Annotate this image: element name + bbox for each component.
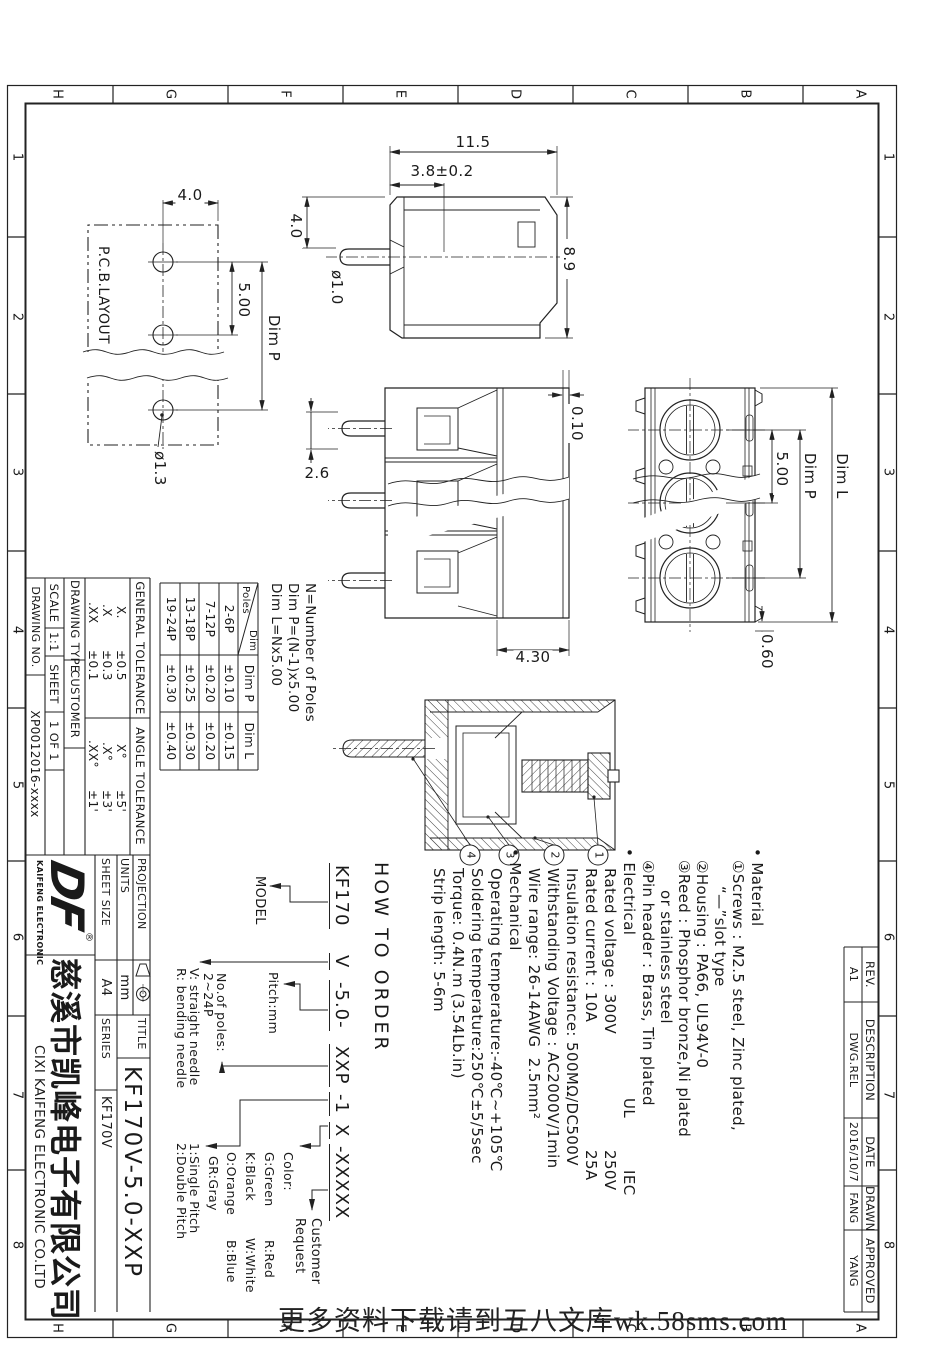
dim-front-step: 0.10: [568, 404, 584, 443]
zone-number: 6: [10, 933, 25, 941]
mechanical-line: Torque: 0.4N.m (3.54Lb.in): [449, 868, 465, 1079]
order-color-red: R:Red: [263, 1240, 276, 1278]
material-line: or stainless steel: [657, 890, 673, 1024]
mechanical-line: Operating temperature:-40℃~+105℃: [487, 868, 503, 1172]
order-needle-v: V: straight needle: [188, 968, 201, 1086]
poles-row-l: ±0.15: [222, 712, 235, 770]
zone-number: 4: [10, 626, 25, 634]
poles-row-p: ±0.20: [203, 655, 216, 712]
electrical-line: Wire range: 26-14AWG 2.5mm²: [525, 868, 541, 1119]
mechanical-line: Strip length: 5-6m: [430, 868, 446, 1012]
company-logo: DF: [40, 856, 94, 933]
zone-number: 2: [10, 313, 25, 321]
order-color-title: Color:: [282, 1152, 295, 1191]
sheet-value: 1 OF 1: [48, 712, 60, 770]
poles-row-l: ±0.40: [164, 712, 177, 770]
order-model-label: MODEL: [252, 876, 266, 925]
order-color-black: K:Black: [244, 1152, 257, 1201]
rev-value: A1: [847, 947, 859, 1002]
electrical-line: Rated voltage : 300V: [601, 868, 617, 1034]
drawing-title: KF170V-5.0-XXP: [120, 1066, 144, 1278]
front-view: [306, 370, 584, 656]
zone-number: 3: [10, 468, 25, 476]
dim-top-p: Dim P: [801, 441, 817, 511]
zone-letter: H: [50, 1323, 65, 1333]
ang-tol-k2: .X°: [100, 742, 113, 761]
ang-tol-v3: ±1': [86, 790, 99, 812]
watermark: 更多资料下载请到五八文库wk.58sms.com: [278, 1299, 788, 1338]
ang-tol-k1: X°: [114, 744, 127, 759]
zone-number: 6: [881, 933, 896, 941]
dim-side-pin-dia: ø1.0: [328, 268, 344, 307]
dim-top-tab: 0.60: [758, 632, 774, 671]
mechanical-title: • Mechanical: [506, 848, 522, 951]
order-color-green: G:Green: [263, 1152, 276, 1207]
section-view: [330, 700, 619, 850]
pole-note-1: N=Number of Poles: [303, 583, 317, 722]
dim-top-pitch: 5.00: [773, 443, 789, 495]
order-pitch-type-1: 1:Single Pitch: [188, 1143, 201, 1234]
poles-table-col2: Dim L: [242, 712, 255, 770]
pole-note-3: Dim L=Nx5.00: [269, 583, 283, 686]
poles-table-diag-bottom: Poles: [240, 586, 251, 614]
zone-letter: G: [163, 89, 178, 99]
zone-letter: E: [393, 90, 408, 98]
order-color-gray: GR:Gray: [207, 1156, 220, 1211]
order-poles-label: No.of poles:: [215, 973, 228, 1052]
material-line: ④Pin header : Brass, Tin plated: [639, 860, 655, 1106]
zone-letter: G: [163, 1323, 178, 1333]
company-name-en: CIXI KAIFENG ELECTRONIC CO.LTD: [32, 1045, 46, 1289]
dim-side-depth: 8.9: [560, 239, 576, 279]
poles-row-label: 13-18P: [183, 583, 196, 655]
order-code-poles: XXP: [329, 1044, 352, 1087]
zone-letter: C: [623, 89, 638, 98]
order-color-orange: O:Orange: [225, 1152, 238, 1215]
title-label: TITLE: [135, 1018, 147, 1050]
general-tolerance-title: GENERAL TOLERANCE: [134, 580, 146, 716]
dim-side-height: 11.5: [454, 135, 493, 151]
zone-number: 5: [10, 781, 25, 789]
zone-letter: D: [508, 89, 523, 99]
ang-tol-k3: .XX°: [86, 740, 99, 768]
dim-front-pin: 2.6: [302, 466, 331, 482]
registered-mark-icon: ®: [83, 932, 94, 942]
projection-symbol-icon: [136, 964, 150, 1004]
electrical-line: Rated current : 10A: [582, 868, 598, 1022]
date-header: DATE: [864, 1118, 876, 1186]
order-customer-1: Customer: [308, 1218, 322, 1284]
zone-number: 7: [10, 1091, 25, 1099]
zone-number: 7: [881, 1091, 896, 1099]
pdf-page: 4.0 5.00 Dim P P.C.B.LAYOUT ø1.3 11.5 3.…: [0, 0, 950, 1345]
approved-header: APPROVED: [864, 1230, 876, 1312]
poles-row-label: 2-6P: [222, 583, 235, 655]
dim-pcb-pitch: 5.00: [235, 276, 251, 324]
material-line: ②Housing : PA66, UL94V-0: [693, 860, 709, 1068]
drawn-value: FANG: [847, 1186, 859, 1230]
electrical-line-iec: 25A: [582, 1150, 598, 1181]
gen-tol-k3: .XX: [86, 602, 99, 623]
dim-pcb-hole-edge: 4.0: [175, 188, 204, 204]
poles-row-label: 7-12P: [203, 583, 216, 655]
ang-tol-v2: ±3': [100, 790, 113, 812]
drawing-no-label: DRAWING NO.: [29, 580, 41, 674]
electrical-std-ul: UL: [620, 1098, 636, 1118]
zone-letter: A: [853, 90, 868, 99]
dim-pcb-hole-dia: ø1.3: [151, 449, 167, 488]
material-title: • Material: [748, 848, 764, 927]
desc-value: DWG.REL: [847, 1002, 859, 1118]
electrical-line-iec: 250V: [601, 1150, 617, 1191]
zone-number: 1: [10, 153, 25, 161]
scale-value: 1:1: [48, 628, 60, 656]
order-code-customer: -XXXXX: [329, 1144, 352, 1221]
order-poles-range: 2~24P: [202, 973, 215, 1017]
gen-tol-k2: .X: [100, 604, 113, 617]
zone-letter: H: [50, 89, 65, 99]
gen-tol-v1: ±0.5: [114, 650, 127, 681]
poles-table-col1: Dim P: [242, 655, 255, 712]
poles-row-p: ±0.30: [164, 655, 177, 712]
zone-number: 1: [881, 153, 896, 161]
electrical-title: • Electrical: [620, 848, 636, 935]
order-code-needle: V: [329, 953, 352, 970]
ang-tol-v1: ±5': [114, 790, 127, 812]
order-code-pitch: -5.0-: [329, 980, 352, 1031]
sheet-size-label: SHEET SIZE: [99, 858, 111, 926]
date-value: 2016/10/7: [847, 1118, 859, 1186]
electrical-line: Withstanding Voltage : AC2000V/1min: [544, 868, 560, 1169]
material-line: ③Reed : Phosphor bronze,Ni plated: [675, 860, 691, 1137]
projection-label: PROJECTION: [135, 858, 147, 930]
balloon-4: 4: [460, 845, 481, 866]
order-code-pitchtype: -1: [329, 1092, 352, 1116]
gen-tol-k1: X.: [114, 606, 127, 619]
poles-table-diag-top: Dim: [247, 630, 258, 651]
order-needle-r: R: bending needle: [175, 968, 188, 1088]
angle-tolerance-title: ANGLE TOLERANCE: [134, 720, 146, 852]
pcb-layout-label: P.C.B.LAYOUT: [95, 246, 110, 344]
balloon-2: 2: [544, 845, 565, 866]
electrical-line: Insulation resistance: 500MΩ/DC500V: [563, 868, 579, 1166]
sheet-label: SHEET: [48, 656, 60, 712]
zone-number: 4: [881, 626, 896, 634]
scale-label: SCALE: [48, 580, 60, 626]
rev-header: REV.: [864, 947, 876, 1002]
drawing-type-value: CUSTOMER: [69, 662, 81, 746]
zone-number: 2: [881, 313, 896, 321]
how-to-order-title: HOW TO ORDER: [370, 862, 390, 1053]
electrical-std-iec: IEC: [620, 1170, 636, 1196]
drawn-header: DRAWN: [864, 1186, 876, 1230]
order-pitch-label: Pitch:mm: [267, 972, 280, 1034]
poles-row-label: 19-24P: [164, 583, 177, 655]
series-label: SERIES: [99, 1018, 111, 1059]
zone-letter: F: [278, 90, 293, 97]
zone-number: 8: [881, 1241, 896, 1249]
zone-number: 5: [881, 781, 896, 789]
top-view: [628, 378, 838, 646]
poles-row-l: ±0.30: [183, 712, 196, 770]
dim-front-top: 4.30: [514, 650, 553, 666]
order-customer-2: Request: [292, 1218, 306, 1274]
drawing-type-label: DRAWING TYPE: [69, 580, 81, 658]
balloon-1: 1: [588, 845, 609, 866]
order-color-white: W:White: [244, 1238, 257, 1293]
poles-row-p: ±0.10: [222, 655, 235, 712]
zone-letter: A: [853, 1324, 868, 1333]
order-color-blue: B:Blue: [225, 1240, 238, 1283]
sheet-size-value: A4: [98, 960, 112, 1015]
material-line: ①Screws : M2.5 steel, Zinc plated,: [729, 860, 745, 1131]
dim-pcb-pitch-total: Dim P: [265, 303, 281, 373]
gen-tol-v2: ±0.3: [100, 650, 113, 681]
gen-tol-v3: ±0.1: [86, 650, 99, 681]
drawing-no-value: XP0012016-xxxx: [28, 675, 41, 853]
dim-top-l: Dim L: [833, 441, 849, 511]
drawing-sheet: 4.0 5.00 Dim P P.C.B.LAYOUT ø1.3 11.5 3.…: [0, 0, 950, 1345]
logo-subtext: KAIFENG ELECTRONIC: [35, 860, 43, 965]
order-code-color: X: [329, 1122, 352, 1139]
material-line: “—”slot type: [711, 886, 727, 987]
mechanical-line: Soldering temperature:250℃±5/5sec: [468, 868, 484, 1164]
dim-side-pin-offset: 4.0: [287, 204, 303, 248]
order-code-model: KF170: [329, 863, 352, 929]
pole-note-2: Dim P=(N-1)x5.00: [286, 583, 300, 713]
approved-value: YANG: [847, 1230, 859, 1312]
series-value: KF170V: [98, 1096, 112, 1148]
order-pitch-type-2: 2:Double Pitch: [175, 1143, 188, 1239]
poles-row-l: ±0.20: [203, 712, 216, 770]
zone-letter: B: [738, 90, 753, 99]
poles-row-p: ±0.25: [183, 655, 196, 712]
desc-header: DESCRIPTION: [864, 1002, 876, 1118]
zone-number: 3: [881, 468, 896, 476]
company-name-cn: 慈溪市凯峰电子有限公司: [44, 958, 90, 1321]
zone-number: 8: [10, 1241, 25, 1249]
dim-side-pin-pos: 3.8±0.2: [408, 164, 475, 180]
units-value: mm: [117, 960, 131, 1015]
units-label: UNITS: [118, 858, 130, 893]
